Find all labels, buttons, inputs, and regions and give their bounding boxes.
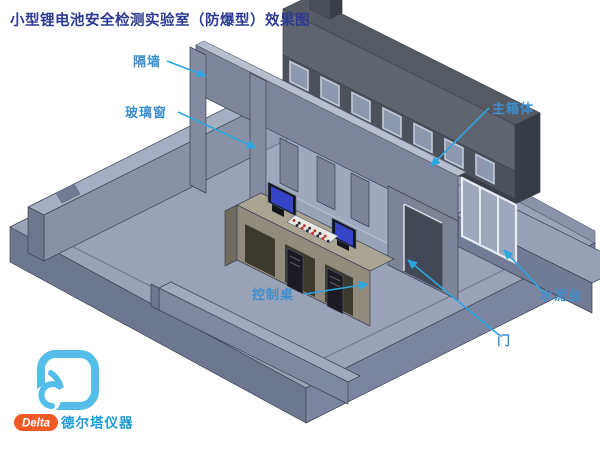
- panel-button: [311, 232, 314, 235]
- label-glass-window: 玻璃窗: [125, 105, 167, 120]
- label-partition-wall: 隔墙: [133, 54, 161, 69]
- label-cement-platform: 水泥台: [540, 288, 582, 303]
- logo-brand-text: Delta: [22, 418, 51, 430]
- rendering-canvas: 隔墙 玻璃窗 主箱体 控制桌 门 水泥台 小型锂电池安全检测实验室（防爆型）效果…: [0, 0, 600, 450]
- panel-button: [298, 222, 301, 225]
- panel-button: [322, 237, 325, 240]
- panel-button: [313, 229, 316, 232]
- panel-button: [319, 232, 322, 235]
- partition-left-pillar: [190, 47, 206, 193]
- label-door: 门: [497, 333, 511, 348]
- pc-tower: [327, 268, 343, 314]
- panel-button: [327, 240, 330, 243]
- panel-button: [296, 224, 299, 227]
- partition-mullion: [280, 138, 298, 192]
- main-box-right-cap: [515, 113, 540, 204]
- panel-button: [301, 227, 304, 230]
- label-control-desk: 控制桌: [252, 287, 294, 302]
- panel-button: [306, 229, 309, 232]
- page-title: 小型锂电池安全检测实验室（防爆型）效果图: [10, 11, 310, 29]
- brand-logo: Delta 德尔塔仪器: [14, 354, 134, 431]
- logo-mark-cut: [33, 385, 61, 413]
- logo-brand-cn-text: 德尔塔仪器: [61, 415, 134, 431]
- label-main-box: 主箱体: [492, 101, 534, 116]
- desk-left-end: [225, 205, 237, 266]
- panel-button: [308, 227, 311, 230]
- scene-svg: 隔墙 玻璃窗 主箱体 控制桌 门 水泥台 小型锂电池安全检测实验室（防爆型）效果…: [0, 0, 600, 450]
- panel-button: [324, 235, 327, 238]
- back-wall-end-cap: [28, 207, 44, 261]
- panel-button: [293, 219, 296, 222]
- partition-mullion: [317, 156, 335, 210]
- partition-mullion: [351, 173, 369, 227]
- panel-button: [303, 224, 306, 227]
- panel-button: [316, 234, 319, 237]
- front-rim-end-cap: [151, 284, 159, 310]
